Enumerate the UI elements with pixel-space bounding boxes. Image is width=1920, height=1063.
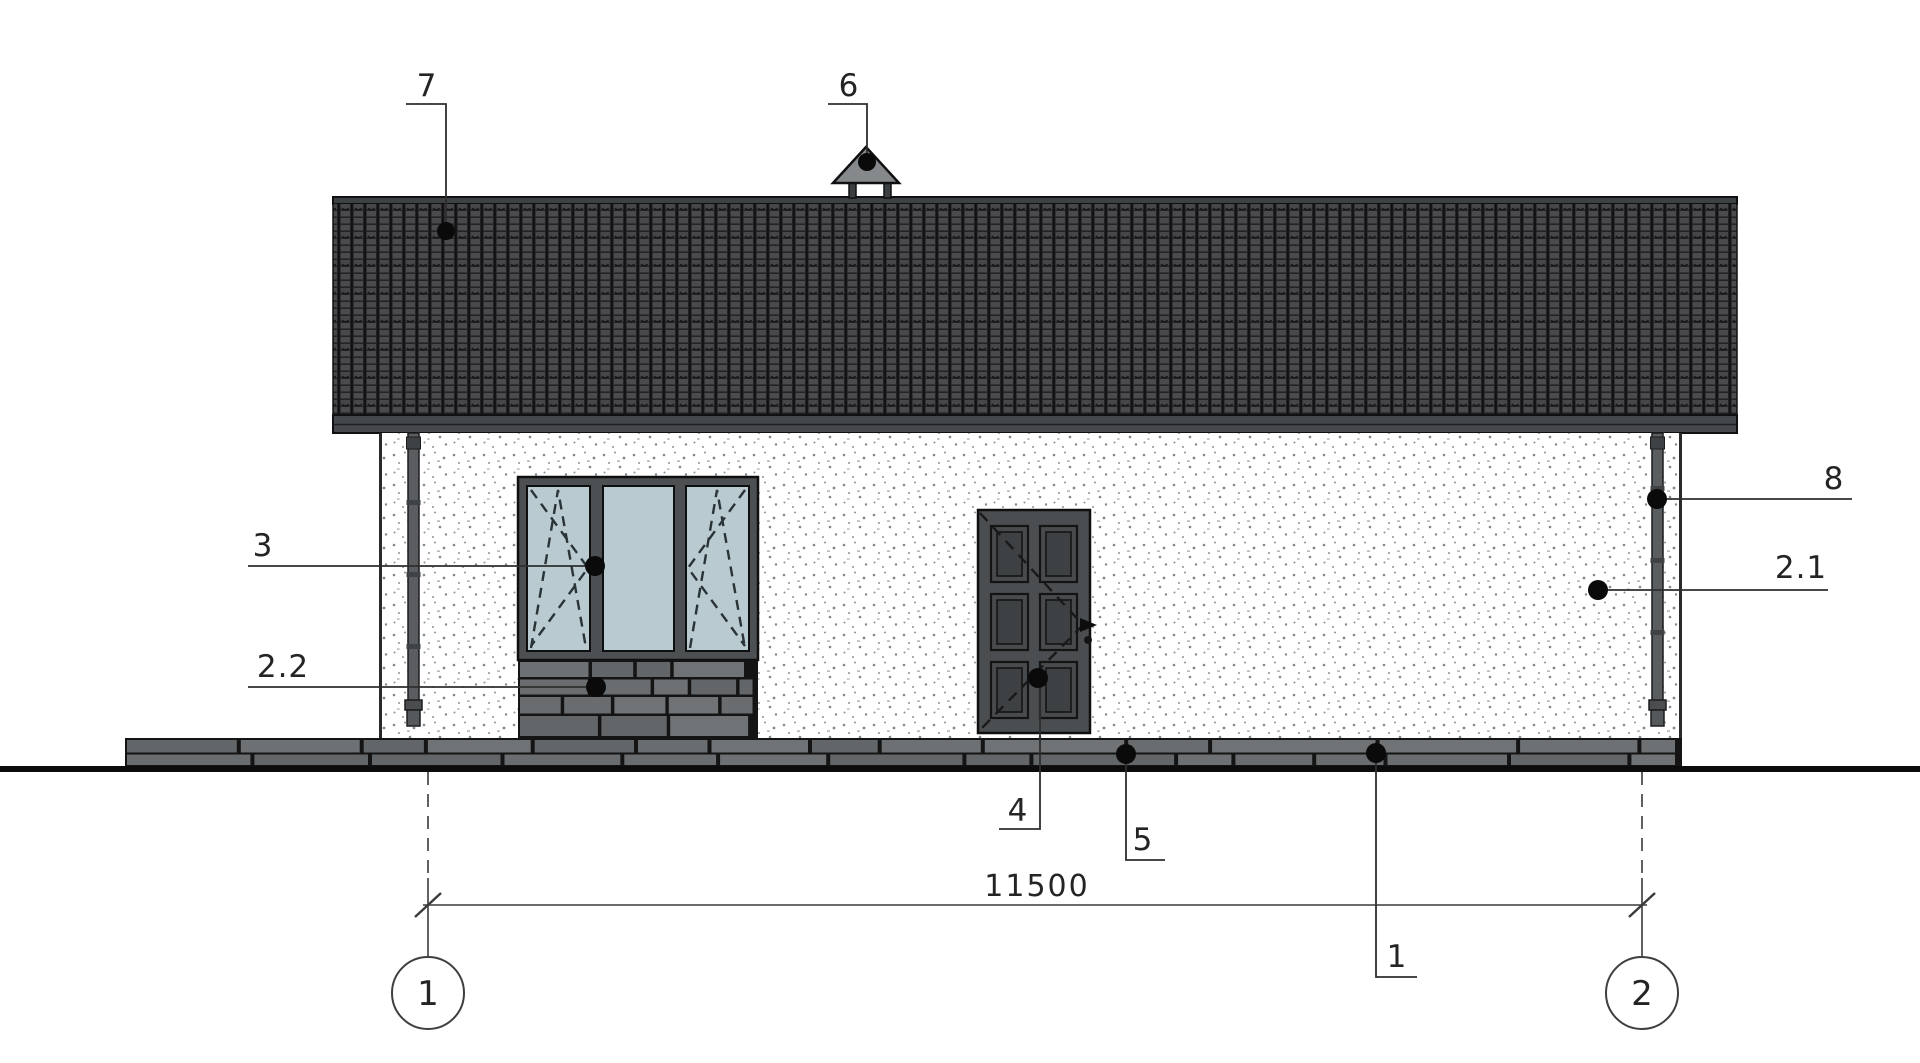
stone bbox=[691, 680, 736, 695]
stone bbox=[1641, 740, 1675, 753]
stone bbox=[520, 697, 561, 714]
callout-leader bbox=[828, 104, 867, 158]
callout-dot bbox=[1116, 744, 1136, 764]
stone bbox=[720, 755, 826, 766]
stone bbox=[670, 716, 748, 736]
downpipe-right-bracket bbox=[1651, 437, 1665, 449]
dimension: 11500 bbox=[415, 772, 1655, 957]
downpipe-right-collar bbox=[1651, 630, 1665, 635]
stone bbox=[520, 716, 598, 736]
window-glass-center bbox=[603, 486, 674, 651]
callout-6-roof-vent: 6 bbox=[828, 68, 876, 171]
door-panel-inset bbox=[997, 532, 1022, 576]
stone bbox=[654, 680, 688, 695]
callout-label: 4 bbox=[1008, 793, 1029, 829]
stone bbox=[364, 740, 424, 753]
ground-line bbox=[0, 766, 1920, 772]
door-panel-inset bbox=[997, 600, 1022, 644]
stone bbox=[127, 740, 237, 753]
base-stones bbox=[127, 740, 1675, 765]
downpipe-left-bracket bbox=[407, 437, 421, 449]
downpipe-left-shoe bbox=[405, 700, 422, 710]
callout-label: 6 bbox=[839, 68, 860, 104]
stone bbox=[520, 662, 589, 677]
stone bbox=[712, 740, 809, 753]
axis-bubble-right-number: 2 bbox=[1631, 974, 1653, 1014]
axis-bubble-left-number: 1 bbox=[417, 974, 439, 1014]
downpipe-right-shoe bbox=[1649, 700, 1666, 710]
callout-dot bbox=[586, 677, 606, 697]
downpipe-left-collar bbox=[407, 644, 421, 649]
downpipe-right-collar bbox=[1651, 558, 1665, 563]
callout-dot bbox=[1647, 489, 1667, 509]
stone bbox=[1178, 755, 1231, 766]
stone bbox=[254, 755, 368, 766]
downpipe-right bbox=[1649, 433, 1666, 726]
axis-bubble-left: 1 bbox=[392, 957, 464, 1029]
door-panel-inset bbox=[997, 668, 1022, 712]
stone bbox=[1388, 755, 1508, 766]
roof-ridge-cap bbox=[333, 197, 1737, 204]
callout-1-blind-area: 1 bbox=[1366, 743, 1417, 977]
callout-label: 2.1 bbox=[1775, 550, 1827, 586]
stone bbox=[1235, 755, 1312, 766]
door-panel-inset bbox=[1046, 532, 1071, 576]
window bbox=[518, 477, 758, 660]
door-panel-inset bbox=[1046, 668, 1071, 712]
window-stone-apron bbox=[518, 660, 758, 738]
downpipe-left bbox=[405, 433, 422, 726]
stone bbox=[966, 755, 1029, 766]
stone bbox=[535, 740, 634, 753]
window-glass-right bbox=[686, 486, 749, 651]
downpipe-right-body bbox=[1652, 433, 1663, 716]
callout-label: 1 bbox=[1387, 939, 1408, 975]
stone bbox=[637, 662, 670, 677]
callout-dot bbox=[585, 556, 605, 576]
callout-dot bbox=[858, 153, 876, 171]
roof-column-accents bbox=[333, 204, 1737, 415]
callout-label: 8 bbox=[1824, 461, 1845, 497]
stone bbox=[740, 680, 753, 695]
door-panel-inset bbox=[1046, 600, 1071, 644]
elevation-drawing: 11500 1 2 7 6 3 2.2 8 2.1 bbox=[0, 0, 1920, 1063]
stone bbox=[428, 740, 531, 753]
downpipe-right-outlet bbox=[1651, 710, 1664, 726]
door bbox=[978, 510, 1097, 733]
stone bbox=[722, 697, 753, 714]
stone bbox=[564, 697, 611, 714]
callout-dot bbox=[1028, 668, 1048, 688]
stone bbox=[241, 740, 360, 753]
stone bbox=[1380, 740, 1517, 753]
stone bbox=[1631, 755, 1675, 766]
dimension-text: 11500 bbox=[984, 869, 1089, 904]
callout-dot bbox=[437, 222, 455, 240]
stone bbox=[812, 740, 878, 753]
stone bbox=[1520, 740, 1637, 753]
stone bbox=[882, 740, 981, 753]
callout-label: 5 bbox=[1133, 822, 1154, 858]
stone bbox=[614, 697, 665, 714]
stone bbox=[669, 697, 718, 714]
stone bbox=[1511, 755, 1627, 766]
callout-label: 2.2 bbox=[257, 649, 309, 685]
axis-bubble-right: 2 bbox=[1606, 957, 1678, 1029]
stone bbox=[830, 755, 962, 766]
stone bbox=[1128, 740, 1208, 753]
downpipe-left-collar bbox=[407, 572, 421, 577]
callout-label: 3 bbox=[253, 528, 274, 564]
callout-label: 7 bbox=[417, 68, 438, 104]
downpipe-left-collar bbox=[407, 500, 421, 505]
stone bbox=[372, 755, 501, 766]
roof bbox=[333, 197, 1737, 433]
stone bbox=[127, 755, 250, 766]
elevation-canvas: 11500 1 2 7 6 3 2.2 8 2.1 bbox=[0, 0, 1920, 1063]
window-glass-left bbox=[527, 486, 590, 651]
stone bbox=[1212, 740, 1375, 753]
callout-dot bbox=[1366, 743, 1386, 763]
stone bbox=[505, 755, 621, 766]
door-handle bbox=[1084, 636, 1092, 644]
stone bbox=[592, 662, 633, 677]
callout-dot bbox=[1588, 580, 1608, 600]
stone bbox=[985, 740, 1124, 753]
stone bbox=[674, 662, 744, 677]
stone bbox=[1033, 755, 1174, 766]
stone bbox=[638, 740, 708, 753]
downpipe-left-outlet bbox=[407, 710, 420, 726]
base-stone-band bbox=[125, 738, 1682, 767]
stone bbox=[624, 755, 716, 766]
stone bbox=[601, 716, 666, 736]
